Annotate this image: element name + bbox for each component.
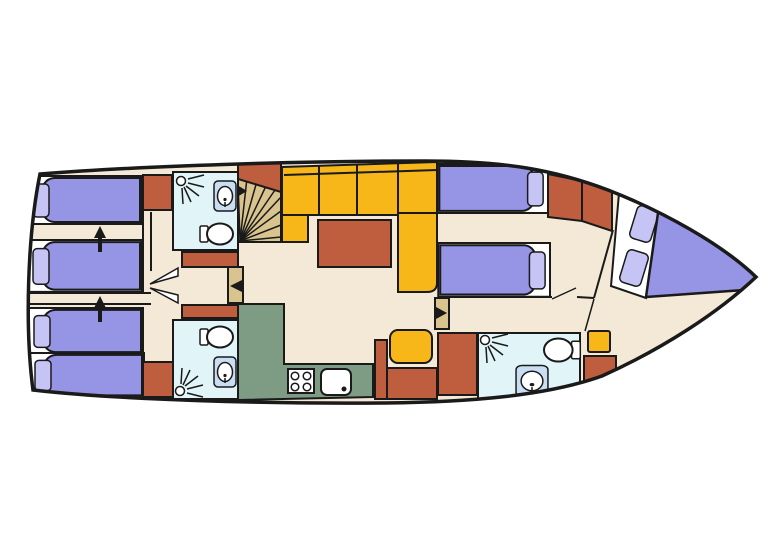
stove-icon (288, 369, 314, 393)
bed (28, 240, 142, 292)
stool (588, 331, 610, 352)
wardrobe (143, 175, 172, 210)
bed (438, 243, 550, 297)
wardrobe (143, 362, 173, 397)
floor-plan-svg (0, 0, 780, 551)
bed (28, 176, 142, 224)
v-berth-mattress (646, 206, 756, 297)
bed (29, 308, 143, 354)
toilet-icon (200, 224, 233, 245)
boat-floor-plan (0, 0, 780, 551)
bench (387, 368, 437, 399)
bench (375, 340, 387, 399)
toilet-icon (200, 327, 233, 348)
cabinet (438, 333, 477, 395)
sink-icon (214, 357, 236, 387)
galley-sink-icon (321, 369, 351, 395)
cupboard (182, 305, 238, 318)
table (318, 220, 391, 267)
stool (390, 330, 432, 363)
cupboard (182, 252, 238, 267)
staircase (237, 163, 281, 242)
sink-icon (214, 181, 236, 211)
aft-bathroom-upper (173, 172, 238, 250)
toilet-icon (544, 338, 580, 361)
sofa-corner-seat (282, 215, 308, 242)
bed (437, 164, 548, 213)
aft-bathroom-lower (173, 320, 238, 399)
